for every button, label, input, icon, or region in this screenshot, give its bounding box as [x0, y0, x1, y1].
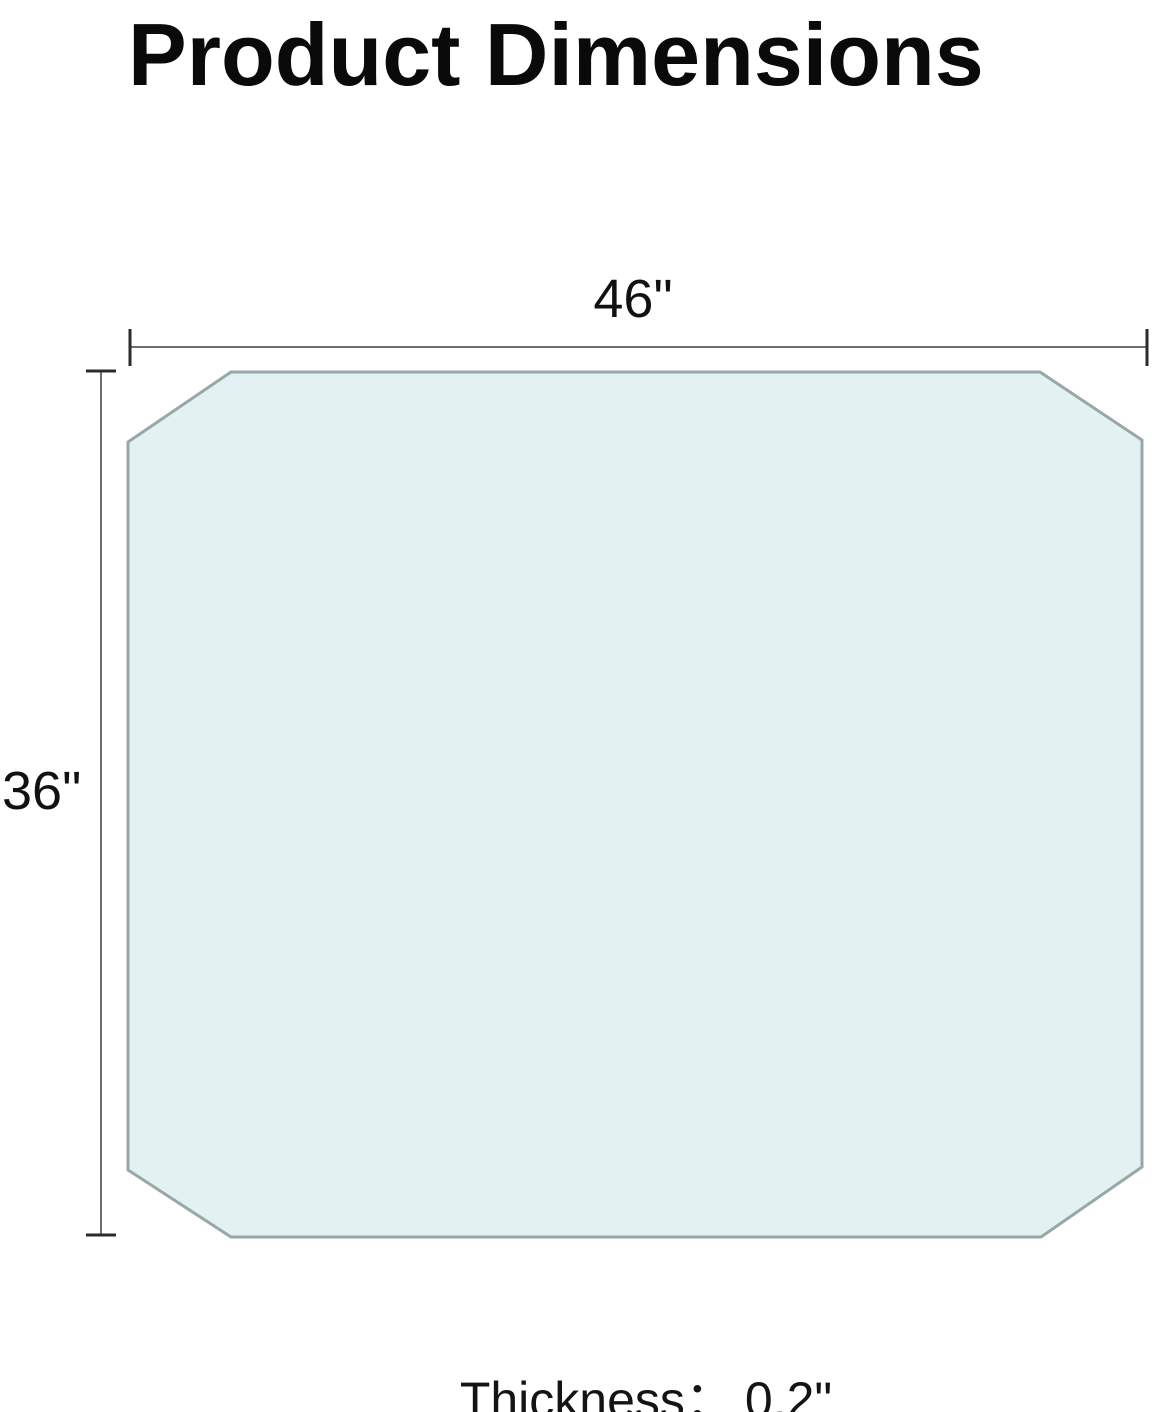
thickness-value: 0.2" [745, 1372, 832, 1412]
dimension-diagram [0, 0, 1152, 1412]
height-dimension-label: 36" [2, 760, 81, 822]
height-dimension-line [86, 371, 116, 1235]
product-dimensions-figure: Product Dimensions 46" 36" Thickness：0.2… [0, 0, 1152, 1412]
octagon-shape [128, 372, 1142, 1237]
thickness-text: Thickness：0.2" [460, 1360, 832, 1412]
width-dimension-line [130, 329, 1147, 366]
thickness-label: Thickness： [460, 1372, 735, 1412]
width-dimension-label: 46" [593, 268, 672, 330]
